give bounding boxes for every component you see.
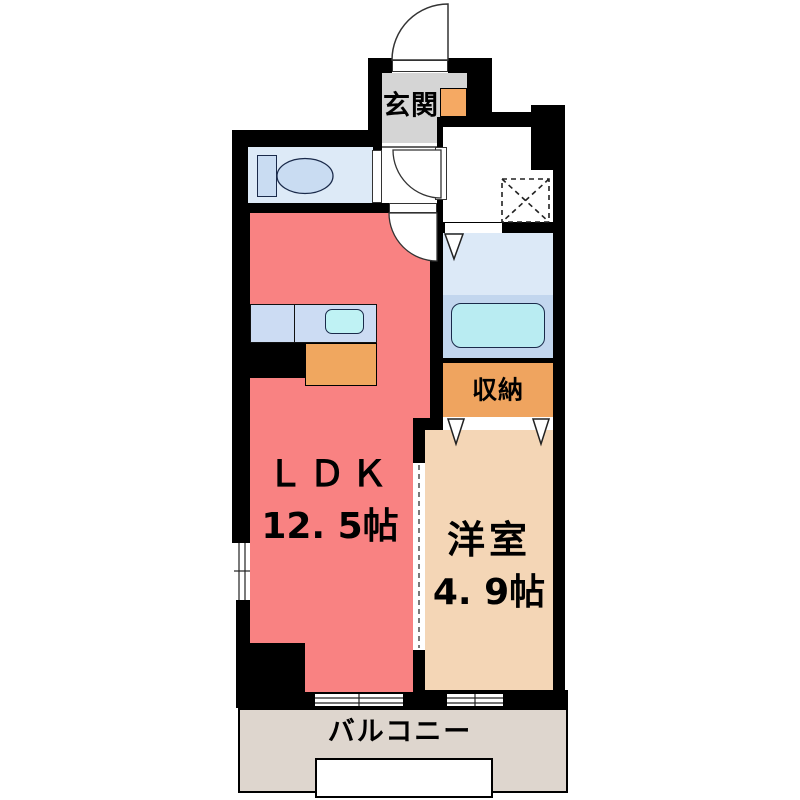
- window-ldk-balcony: [315, 694, 403, 706]
- label-balcony: バルコニー: [328, 719, 472, 746]
- entrance-door-leaf: [392, 60, 448, 72]
- kitchen-cabinet: [305, 343, 377, 386]
- hallway: [382, 143, 437, 203]
- room-ldk: [305, 643, 413, 692]
- toilet-tank: [257, 155, 277, 197]
- ldk-door-leaf: [389, 203, 437, 213]
- label-yoshitsu-area: 4. 9帖: [433, 575, 545, 611]
- wall-segment: [430, 363, 443, 417]
- window-left: [234, 543, 250, 600]
- balcony-notch: [315, 758, 493, 798]
- room-washroom: [443, 170, 553, 222]
- wall-segment: [430, 213, 443, 363]
- label-ldk: ＬＤＫ: [267, 457, 393, 493]
- entrance-door-arc-icon: [392, 4, 448, 60]
- washroom-door-leaf: [435, 147, 447, 200]
- sliding-door: [413, 463, 425, 650]
- toilet-door-leaf: [372, 150, 382, 203]
- closet-door-band: [443, 417, 553, 430]
- kitchen-counter-divider: [294, 304, 295, 343]
- label-ldk-area: 12. 5帖: [261, 509, 398, 545]
- label-yoshitsu: 洋室: [447, 521, 531, 559]
- kitchen-pillar: [243, 343, 305, 378]
- bathtub-icon: [451, 303, 545, 348]
- floor-plan: 玄関 ＬＤＫ 12. 5帖 洋室 4. 9帖 収納 バルコニー: [0, 0, 800, 800]
- kitchen-sink-icon: [325, 309, 364, 334]
- wall-segment: [232, 203, 389, 213]
- label-genkan: 玄関: [383, 93, 439, 120]
- room-washroom: [443, 127, 531, 170]
- label-shuno: 収納: [472, 378, 524, 403]
- wall-segment: [425, 417, 443, 430]
- shoe-cabinet: [440, 88, 467, 117]
- window-yoshitsu-balcony: [447, 694, 503, 706]
- room-bathroom-upper: [443, 233, 553, 295]
- bathroom-door-opening: [445, 223, 502, 233]
- wall-pillar: [243, 643, 305, 708]
- wall-segment: [553, 127, 565, 708]
